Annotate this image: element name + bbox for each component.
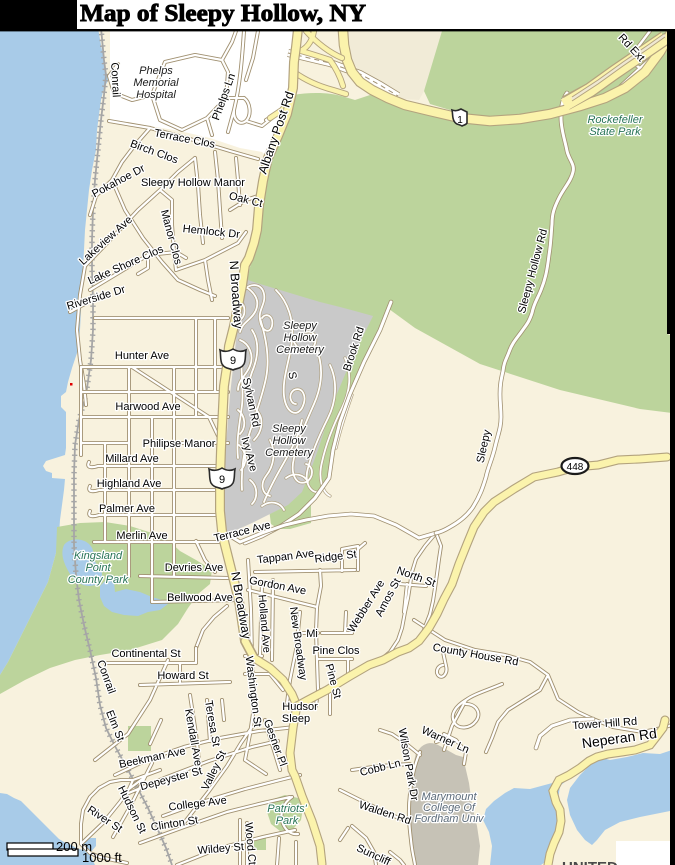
svg-text:Mi: Mi: [306, 628, 318, 640]
svg-text:Park: Park: [276, 815, 299, 827]
svg-text:Hospital: Hospital: [136, 89, 176, 101]
svg-text:Map of Sleepy Hollow, NY: Map of Sleepy Hollow, NY: [80, 1, 366, 27]
svg-text:Rockefeller: Rockefeller: [587, 114, 643, 126]
svg-text:Philipse Manor: Philipse Manor: [143, 438, 216, 450]
svg-text:County Park: County Park: [68, 574, 129, 586]
svg-text:Cemetery: Cemetery: [265, 447, 314, 459]
svg-text:Hollow: Hollow: [283, 332, 317, 344]
svg-text:Hollow: Hollow: [272, 435, 306, 447]
svg-text:Kingsland: Kingsland: [74, 550, 123, 562]
svg-text:Patriots': Patriots': [267, 803, 307, 815]
svg-text:Highland Ave: Highland Ave: [97, 478, 162, 490]
svg-text:1000 ft: 1000 ft: [82, 850, 122, 865]
svg-text:Sleepy Hollow Manor: Sleepy Hollow Manor: [141, 177, 245, 189]
svg-text:9: 9: [219, 474, 225, 486]
svg-text:State Park: State Park: [589, 126, 641, 138]
svg-text:Sleepy: Sleepy: [272, 423, 307, 435]
svg-text:Sleep: Sleep: [282, 713, 310, 725]
svg-text:Palmer Ave: Palmer Ave: [99, 503, 155, 515]
svg-text:Devries Ave: Devries Ave: [165, 562, 224, 574]
svg-text:Phelps: Phelps: [139, 65, 173, 77]
svg-text:Howard St: Howard St: [157, 670, 208, 682]
svg-text:Merlin Ave: Merlin Ave: [116, 530, 167, 542]
svg-text:Pine Clos: Pine Clos: [312, 645, 360, 657]
svg-text:Hudsor: Hudsor: [282, 701, 318, 713]
svg-text:Point: Point: [85, 562, 111, 574]
svg-text:Hunter Ave: Hunter Ave: [115, 350, 169, 362]
svg-text:Fordham Univ: Fordham Univ: [414, 813, 485, 825]
svg-text:1: 1: [457, 115, 463, 126]
svg-text:Bellwood Ave: Bellwood Ave: [167, 592, 233, 604]
svg-text:Harwood Ave: Harwood Ave: [115, 401, 180, 413]
svg-text:Millard Ave: Millard Ave: [105, 453, 159, 465]
svg-text:Conrail: Conrail: [108, 62, 122, 97]
svg-text:Cemetery: Cemetery: [276, 344, 325, 356]
svg-text:9: 9: [230, 355, 236, 367]
svg-text:448: 448: [567, 462, 584, 473]
svg-text:Continental St: Continental St: [111, 648, 180, 660]
svg-text:Sleepy: Sleepy: [283, 320, 318, 332]
svg-text:Memorial: Memorial: [133, 77, 179, 89]
svg-text:UNITED: UNITED: [562, 859, 618, 865]
